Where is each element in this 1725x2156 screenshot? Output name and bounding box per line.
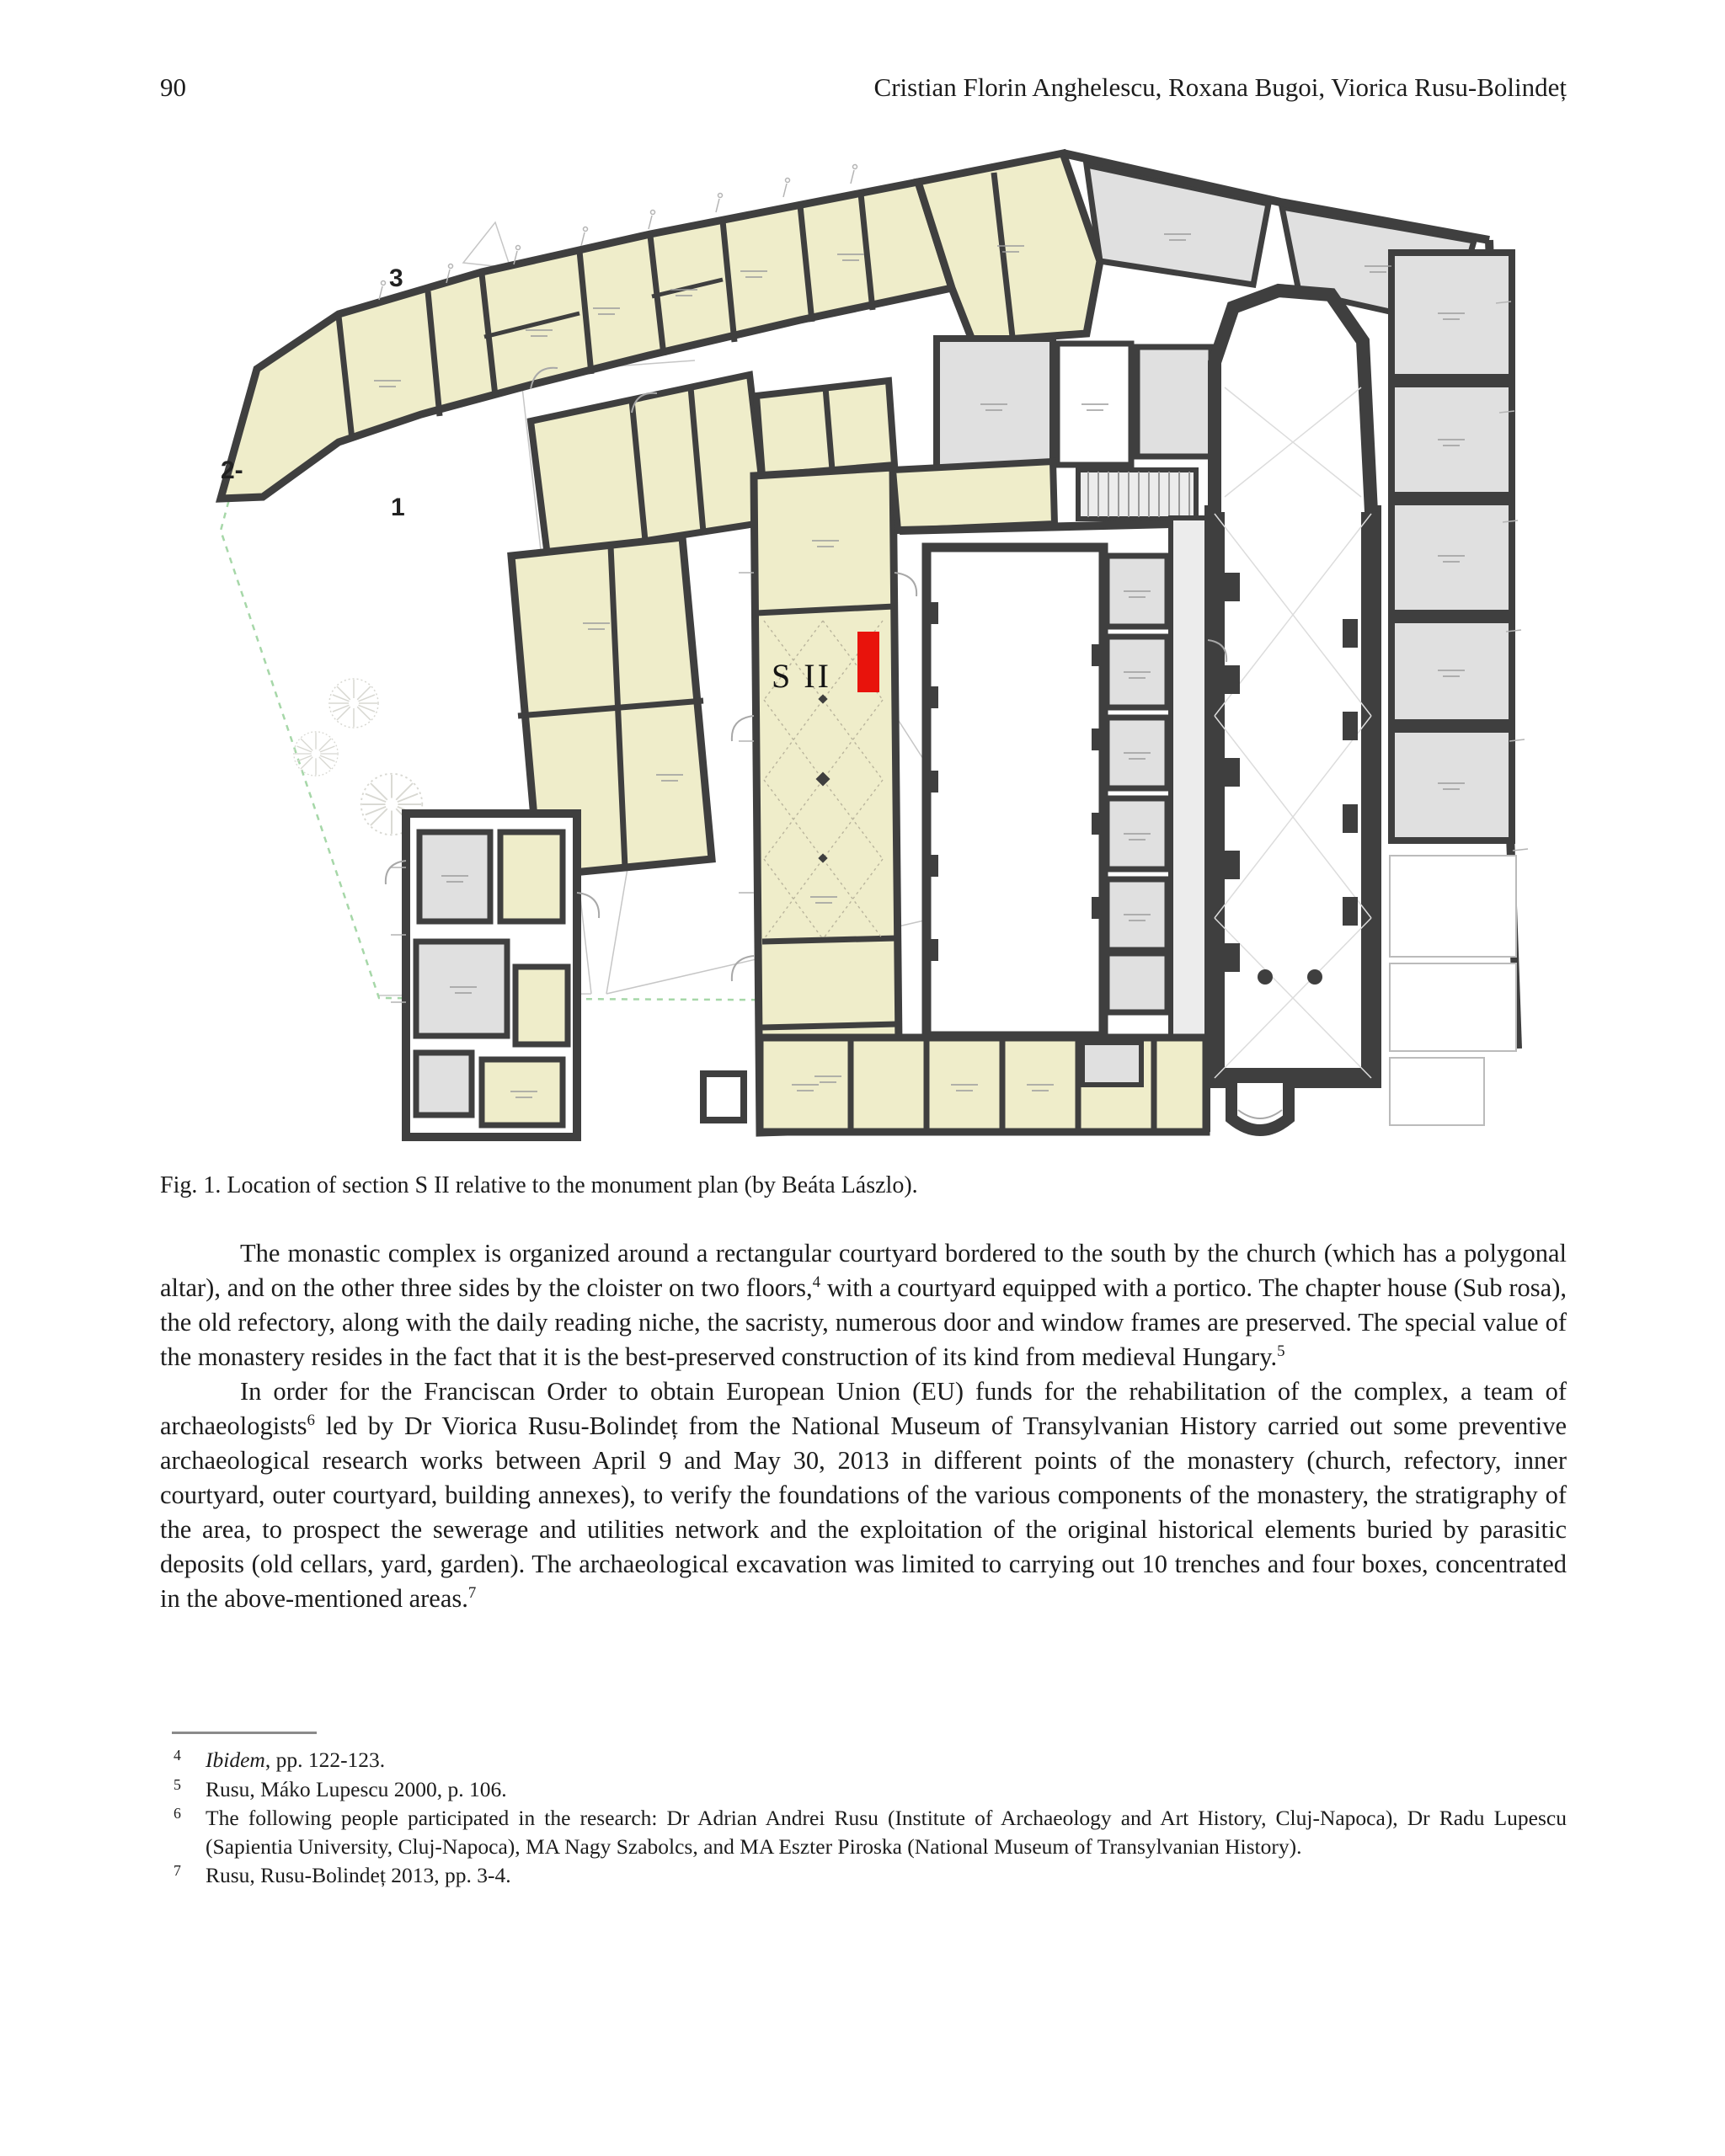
section-s2-marker [857,632,879,692]
running-header: Cristian Florin Anghelescu, Roxana Bugoi… [874,72,1567,103]
footnote-marker: 5 [1277,1342,1284,1360]
church [1215,240,1518,1130]
footnote-list: 4Ibidem, pp. 122-123.5Rusu, Máko Lupescu… [160,1746,1567,1890]
footnote-text: The following people participated in the… [206,1804,1567,1860]
body-text: The monastic complex is organized around… [160,1236,1567,1616]
body-paragraph: In order for the Franciscan Order to obt… [160,1374,1567,1616]
footnote-4: 4Ibidem, pp. 122-123. [160,1746,1567,1774]
cloister-courtyard [927,547,1103,1036]
footnotes: 4Ibidem, pp. 122-123.5Rusu, Máko Lupescu… [160,1732,1567,1891]
cloister-north-range [893,462,1055,531]
section-s2-label: S II [772,657,831,695]
footnote-number: 7 [160,1857,206,1886]
annex-building [406,814,577,1137]
footnote-marker: 4 [813,1273,820,1291]
plan-label-1: 1 [391,494,405,521]
footnote-5: 5Rusu, Máko Lupescu 2000, p. 106. [160,1775,1567,1804]
running-header-row: 90 Cristian Florin Anghelescu, Roxana Bu… [160,72,1567,103]
footnote-separator [172,1732,317,1734]
paper-page: { "page": { "number": "90", "running_hea… [0,0,1725,2156]
footnote-text: Rusu, Rusu-Bolindeț 2013, pp. 3-4. [206,1861,1567,1890]
figure-1: S II [211,135,1533,1145]
body-paragraph: The monastic complex is organized around… [160,1236,1567,1374]
footnote-marker: 7 [468,1584,476,1602]
footnote-text: Ibidem, pp. 122-123. [206,1746,1567,1774]
plan-label-2: 2- [221,456,243,484]
footnote-6: 6The following people participated in th… [160,1804,1567,1860]
footnote-number: 5 [160,1771,206,1800]
footnote-7: 7Rusu, Rusu-Bolindeț 2013, pp. 3-4. [160,1861,1567,1890]
figure-caption: Fig. 1. Location of section S II relativ… [160,1172,1567,1199]
cloister-west-range: S II [754,467,900,1133]
footnote-marker: 6 [307,1412,314,1429]
page-number: 90 [160,72,186,103]
monastery-plan: S II [211,135,1533,1145]
footnote-text: Rusu, Máko Lupescu 2000, p. 106. [206,1775,1567,1804]
footnote-number: 4 [160,1742,206,1770]
plan-label-3: 3 [389,264,403,292]
footnote-number: 6 [160,1800,206,1856]
